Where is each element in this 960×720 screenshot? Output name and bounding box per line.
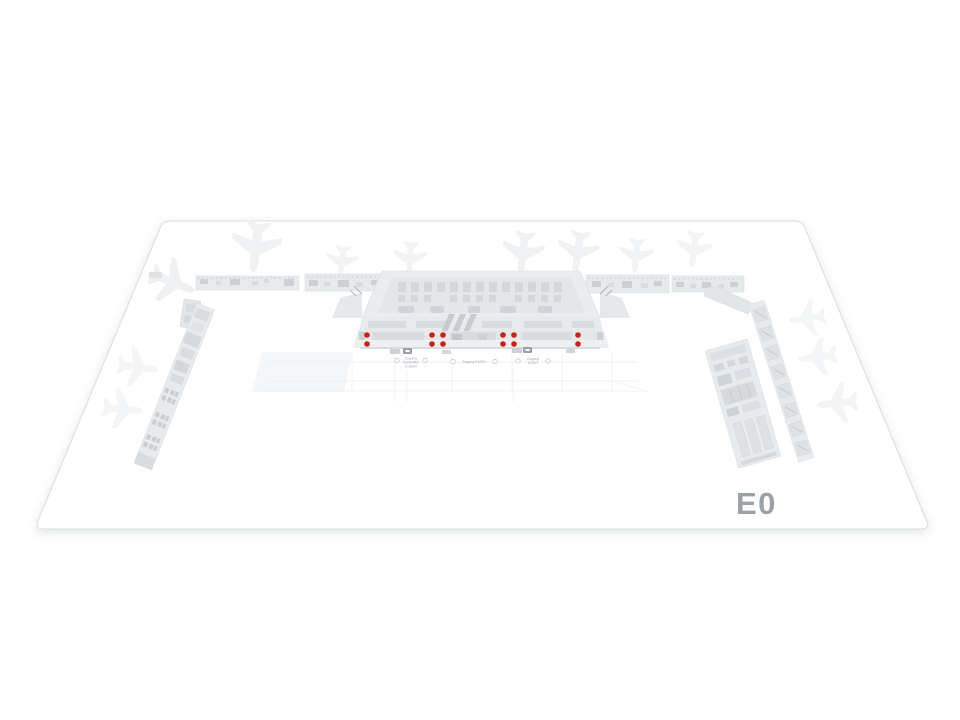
main-terminal-building: [332, 271, 630, 354]
label-badge-icon: [395, 358, 399, 362]
entrance-label-left: ZugangBahn/RB/S-Bahn: [403, 357, 418, 369]
poi-marker[interactable]: [364, 341, 370, 347]
entrance-label-center: Zugang E0/E/1: [462, 360, 486, 364]
level-label: E0: [736, 486, 777, 521]
poi-marker[interactable]: [500, 332, 506, 338]
airport-map-screen: ZugangBahn/RB/S-Bahn Zugang E0/E/1 Zugan…: [0, 0, 960, 720]
poi-marker[interactable]: [429, 332, 435, 338]
airport-map: ZugangBahn/RB/S-Bahn Zugang E0/E/1 Zugan…: [0, 0, 960, 720]
poi-marker[interactable]: [511, 341, 517, 347]
poi-marker[interactable]: [440, 332, 446, 338]
poi-marker[interactable]: [364, 332, 370, 338]
entrance-icon: [403, 348, 412, 354]
poi-marker[interactable]: [500, 341, 506, 347]
label-badge-icon: [423, 358, 427, 362]
entrance-label-right: ZugangE0/E/1: [527, 357, 539, 365]
label-badge-icon: [516, 359, 520, 363]
label-badge-icon: [493, 359, 497, 363]
poi-marker[interactable]: [440, 341, 446, 347]
poi-marker[interactable]: [429, 341, 435, 347]
poi-marker[interactable]: [575, 341, 581, 347]
poi-marker[interactable]: [575, 332, 581, 338]
entrance-icon: [523, 347, 532, 353]
label-badge-icon: [546, 359, 550, 363]
label-badge-icon: [451, 359, 455, 363]
poi-marker[interactable]: [511, 332, 517, 338]
